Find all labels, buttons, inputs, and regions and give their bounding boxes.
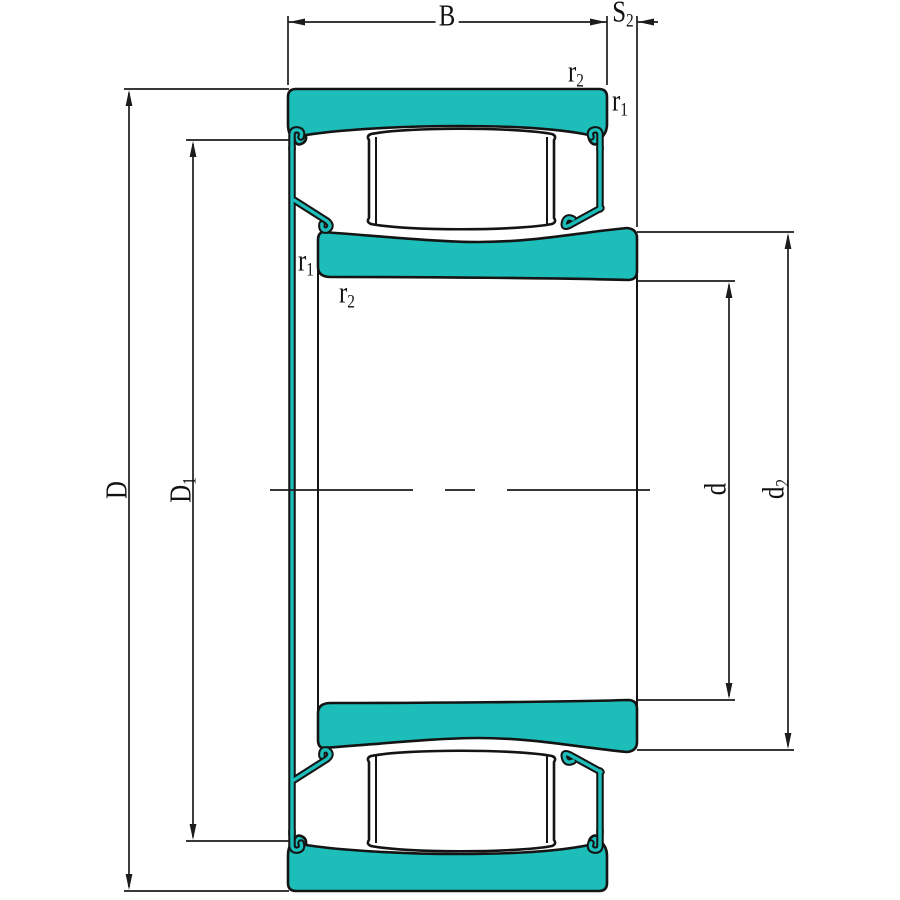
dim-D — [124, 89, 289, 891]
label-diameter-D1: D1 — [165, 477, 196, 503]
roller-top — [368, 129, 555, 230]
label-outer-diameter-D: D — [101, 481, 132, 499]
dim-S2 — [637, 16, 658, 227]
label-chamfer-r2-left: r2 — [339, 277, 355, 308]
roller-bottom — [368, 751, 555, 852]
label-displacement-S2: S2 — [612, 0, 633, 27]
label-width-B: B — [436, 0, 459, 31]
bearing-cross-section-svg — [0, 0, 900, 900]
inner-ring-top — [318, 228, 637, 280]
label-diameter-d2: d2 — [758, 479, 789, 499]
label-chamfer-r1-top: r1 — [612, 85, 628, 116]
label-chamfer-r1-left: r1 — [298, 245, 314, 276]
label-bore-diameter-d: d — [700, 483, 731, 495]
label-chamfer-r2-top: r2 — [568, 56, 584, 87]
bearing-drawing-canvas: B S2 r2 r1 r1 r2 D D1 d d2 — [0, 0, 900, 900]
inner-ring-bottom — [318, 700, 637, 752]
